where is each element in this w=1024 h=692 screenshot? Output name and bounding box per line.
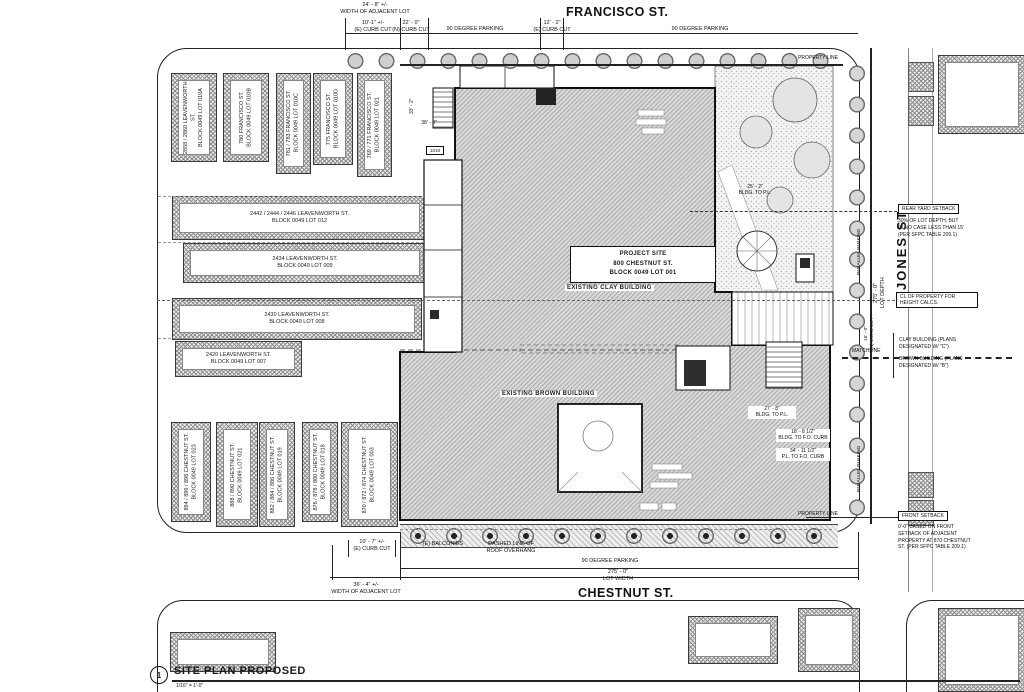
planter — [908, 96, 934, 126]
cl-of-property-label: CL OF PROPERTY FOR HEIGHT CALCS. — [896, 292, 978, 308]
existing-brown-building-label: EXISTING BROWN BUILDING — [500, 391, 597, 397]
dim-lot-width: 275' - 0" LOT WIDTH — [590, 569, 646, 583]
roof-overhang-dashed-line — [400, 529, 832, 530]
dim-e-curb-cut2-top: 12' - 2" (E) CURB CUT — [532, 20, 572, 34]
dim-roof-overhang: DASHED LINE OF ROOF OVERHANG — [480, 541, 542, 555]
dim-bldg-to-pl-2: 27' - 8" BLDG. TO P.L. — [748, 406, 796, 419]
clay-building-note: CLAY BUILDING (PLANS DESIGNATED W/ "C") — [899, 337, 975, 351]
dim-pl-to-curb: 34' - 11 1/2" P.L. TO F.O. CURB — [776, 448, 830, 461]
planter — [908, 62, 934, 92]
project-site-label-box: PROJECT SITE 800 CHESTNUT ST. BLOCK 0049… — [570, 246, 716, 283]
parallel-parking-label-upper: PARALLEL PARKING — [857, 203, 863, 275]
title-underline — [172, 680, 1020, 682]
dim-bldg-to-pl: 25' - 2" BLDG. TO P.L. — [730, 184, 780, 197]
sheet-title: SITE PLAN PROPOSED — [174, 665, 306, 677]
street-name-francisco: FRANCISCO ST. — [566, 5, 668, 19]
site-plan-sheet: 2858 / 2860 LEAVENWORTH ST. BLOCK 0049 L… — [0, 0, 1024, 692]
brown-building-note: BROWN BUILDING (PLANS DESIGNATED W/ "B") — [899, 356, 975, 370]
dim-n-curb-cut-top: 22' - 0" (N) CURB CUT — [392, 20, 430, 34]
dim-e-curb-cut-bottom: 10' - 7" +/- (E) CURB CUT — [351, 539, 393, 553]
property-line-label-top: PROPERTY LINE — [788, 55, 848, 61]
francisco-parking-strip — [340, 50, 838, 72]
front-setback-label: FRONT SETBACK — [898, 511, 948, 521]
rear-yard-setback-label: REAR YARD SETBACK — [898, 204, 959, 214]
dim-33-2: 33' - 2" — [409, 90, 415, 122]
front-setback-note: 0'-0" BASED ON FRONT SETBACK OF ADJACENT… — [898, 524, 980, 551]
dim-90-degree-parking-left: 90 DEGREE PARKING — [430, 26, 520, 33]
dim-90-degree-parking-bottom: 90 DEGREE PARKING — [565, 558, 655, 565]
property-line-top — [400, 64, 843, 66]
existing-clay-building-label: EXISTING CLAY BUILDING — [565, 285, 654, 291]
planter — [908, 472, 934, 498]
rear-setback-line — [690, 211, 897, 212]
clay-brown-arrow — [893, 333, 894, 378]
detail-number-bubble: 1 — [150, 666, 168, 684]
matchline-label: MATCHLINE — [852, 348, 898, 355]
dim-bldg-to-curb: 18' - 8 1/2" BLDG. TO F.O. CURB — [776, 429, 830, 442]
dim-90-degree-parking-right: 90 DEGREE PARKING — [655, 26, 745, 33]
keynote-tag: 1018 — [426, 146, 444, 155]
sheet-scale: 1/16" = 1'-0" — [176, 683, 236, 690]
dim-38-0: 38' - 0" — [414, 120, 444, 126]
jones-curb-line — [870, 48, 872, 524]
property-line-label-bottom: PROPERTY LINE — [788, 511, 848, 517]
street-name-chestnut: CHESTNUT ST. — [578, 586, 674, 600]
parallel-parking-label-lower: PARALLEL PARKING — [857, 420, 863, 492]
centerline-of-property — [157, 300, 975, 301]
dim-e-balconies: (E) BALCONIES — [413, 541, 473, 548]
rear-yard-setback-note: 30% OF LOT DEPTH, BUT IN NO CASE LESS TH… — [898, 218, 974, 238]
dim-width-adjacent-lot-bottom: 36' - 4" +/- WIDTH OF ADJACENT LOT — [320, 582, 412, 596]
dim-width-adjacent-lot-top: 24' - 8" +/- WIDTH OF ADJACENT LOT — [330, 2, 420, 16]
dim-e-curb-cut-top: 10'-1" +/- (E) CURB CUT — [354, 20, 392, 34]
